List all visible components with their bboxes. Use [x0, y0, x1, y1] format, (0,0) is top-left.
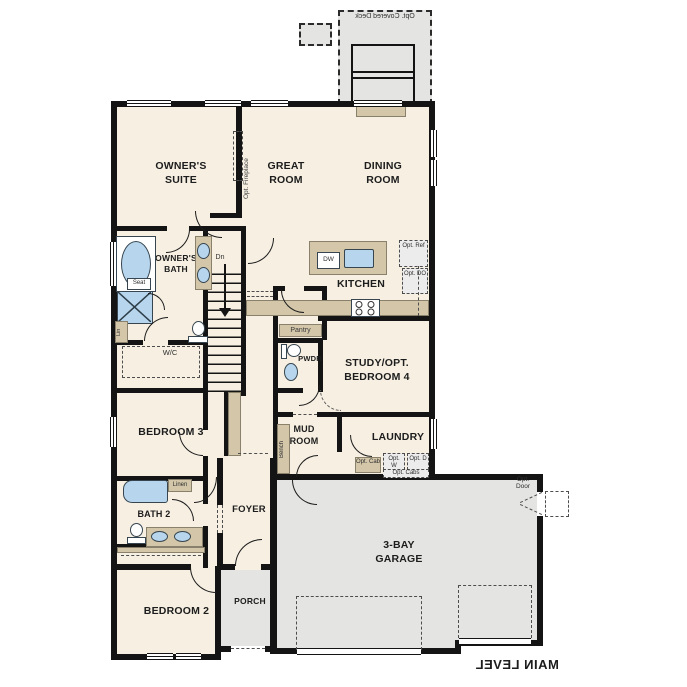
wall [111, 564, 191, 570]
garage-door-bay-outline [458, 585, 532, 638]
room-label-pwdr: PWDR [293, 354, 327, 364]
wall [270, 458, 277, 654]
optional-washer-label: Opt. W [385, 456, 403, 470]
closet-rod-dashed [121, 555, 201, 556]
cooktop-icon [351, 299, 380, 317]
wall [537, 474, 543, 492]
sink-icon [197, 267, 210, 283]
opening-dashed [247, 291, 273, 292]
wall [111, 226, 167, 231]
optional-door-label: Opt. Door [512, 476, 534, 491]
optional-cabinet-label: Opt. Cab [356, 459, 380, 466]
wall [273, 412, 293, 417]
deck-stair-structure [351, 44, 415, 105]
room-label-kitchen: KITCHEN [325, 278, 397, 292]
window [430, 160, 437, 186]
wall [317, 412, 434, 417]
optional-cabinets-label: Opt. Cabs [383, 470, 429, 477]
toilet-tank-icon [188, 336, 208, 343]
room-label-mud-room: MUD ROOM [287, 424, 321, 447]
room-label-wc: W/C [150, 349, 190, 358]
closet-shelf [117, 547, 205, 553]
kitchen-counter [246, 300, 429, 316]
toilet-icon [192, 321, 205, 336]
room-label-great-room: GREAT ROOM [261, 160, 311, 187]
linen-label: Linen [168, 482, 192, 489]
room-label-foyer: FOYER [226, 504, 272, 516]
sink-icon [197, 243, 210, 259]
optional-fireplace-label: Opt. Fireplace [243, 133, 253, 225]
wall [219, 564, 235, 570]
cooktop-burners-glyph [352, 300, 379, 316]
stairs-direction-line [224, 264, 226, 308]
room-label-dining-room: DINING ROOM [358, 160, 408, 187]
optional-double-oven-label: Opt. DO [404, 271, 426, 278]
wall [111, 101, 117, 660]
window [251, 100, 288, 107]
sink-icon [284, 363, 298, 381]
wall [261, 564, 277, 570]
stairs-dn-label: Dn [209, 254, 231, 262]
window [205, 100, 241, 107]
porch-opening-dashed [231, 648, 265, 649]
tub-icon [123, 480, 168, 503]
window [430, 419, 437, 449]
under-stair-closet [228, 392, 241, 456]
room-label-owners-bath: OWNER'S BATH [152, 253, 200, 275]
wall [203, 392, 208, 430]
room-label-study: STUDY/OPT. BEDROOM 4 [341, 357, 413, 384]
toilet-icon [130, 523, 143, 537]
wall [537, 516, 543, 646]
stairs-down-arrow-icon [219, 308, 231, 317]
window [430, 130, 437, 157]
window [354, 100, 402, 107]
room-label-porch: PORCH [227, 596, 273, 607]
optional-dryer-label: Opt. D [409, 456, 427, 463]
room-label-owners-suite: OWNER'S SUITE [151, 160, 211, 187]
wall [337, 412, 342, 452]
hearth-counter [356, 106, 406, 117]
optional-fireplace-box [233, 131, 243, 181]
window [127, 100, 171, 107]
garage-door-bay-outline [296, 596, 422, 650]
lin-label: Lin [116, 322, 127, 342]
sink-icon [151, 531, 168, 542]
toilet-tank-icon [127, 537, 146, 544]
kitchen-sink-icon [344, 249, 374, 268]
porch-opening [231, 646, 265, 652]
window [176, 653, 201, 660]
porch-floor [221, 570, 273, 648]
deck-structure-line [351, 71, 415, 73]
garage-door-opening [459, 638, 531, 645]
wall [111, 388, 208, 393]
room-label-bedroom2: BEDROOM 2 [134, 605, 219, 619]
optional-door-landing [545, 491, 569, 517]
floor-plan: Opt. Covered Deck [0, 0, 687, 687]
seat-label: Seat [127, 280, 151, 287]
cased-opening-dashed [217, 505, 223, 533]
room-label-bath2: BATH 2 [133, 509, 175, 521]
room-label-pantry: Pantry [279, 327, 322, 335]
deck-structure-line [351, 77, 415, 79]
optional-refrigerator-label: Opt. Ref [401, 243, 426, 250]
level-title: MAIN LEVEL [467, 657, 567, 674]
deck-extension [299, 23, 332, 46]
window [110, 417, 117, 447]
dishwasher-label: DW [317, 256, 340, 263]
opening-dashed [293, 414, 317, 415]
deck-label: Opt. Covered Deck [340, 13, 430, 21]
garage-door-opening [297, 648, 421, 655]
wall [273, 338, 323, 343]
shower-x-glyph [118, 292, 151, 322]
window [147, 653, 173, 660]
closet-rod-dashed [238, 453, 268, 454]
optional-counter-dashed [418, 266, 419, 316]
sink-icon [174, 531, 191, 542]
room-label-laundry: LAUNDRY [365, 431, 431, 445]
room-label-garage: 3-BAY GARAGE [369, 539, 429, 566]
opening-dashed [247, 296, 273, 297]
